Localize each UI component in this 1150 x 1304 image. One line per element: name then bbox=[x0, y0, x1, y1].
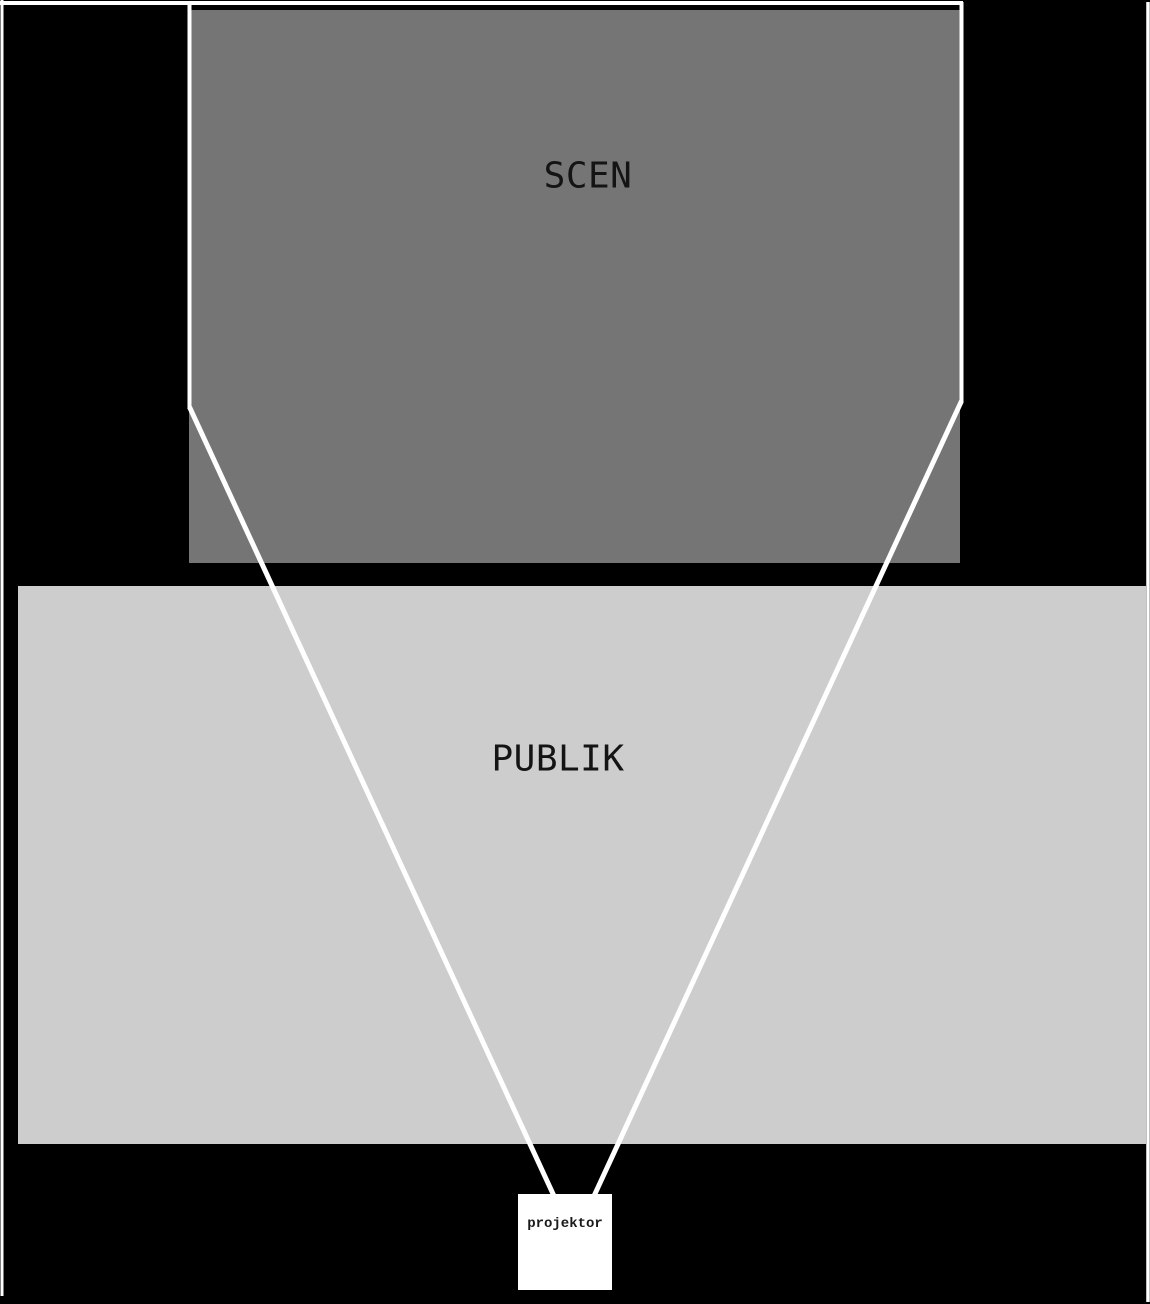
stage-plan-diagram: projektor SCEN PUBLIK bbox=[0, 0, 1150, 1304]
audience-area bbox=[18, 586, 1146, 1144]
stage-area bbox=[189, 10, 960, 563]
audience-label: PUBLIK bbox=[491, 739, 624, 780]
projector-label: projektor bbox=[527, 1216, 603, 1232]
stage-label: SCEN bbox=[544, 156, 633, 197]
projector-box: projektor bbox=[518, 1194, 612, 1290]
